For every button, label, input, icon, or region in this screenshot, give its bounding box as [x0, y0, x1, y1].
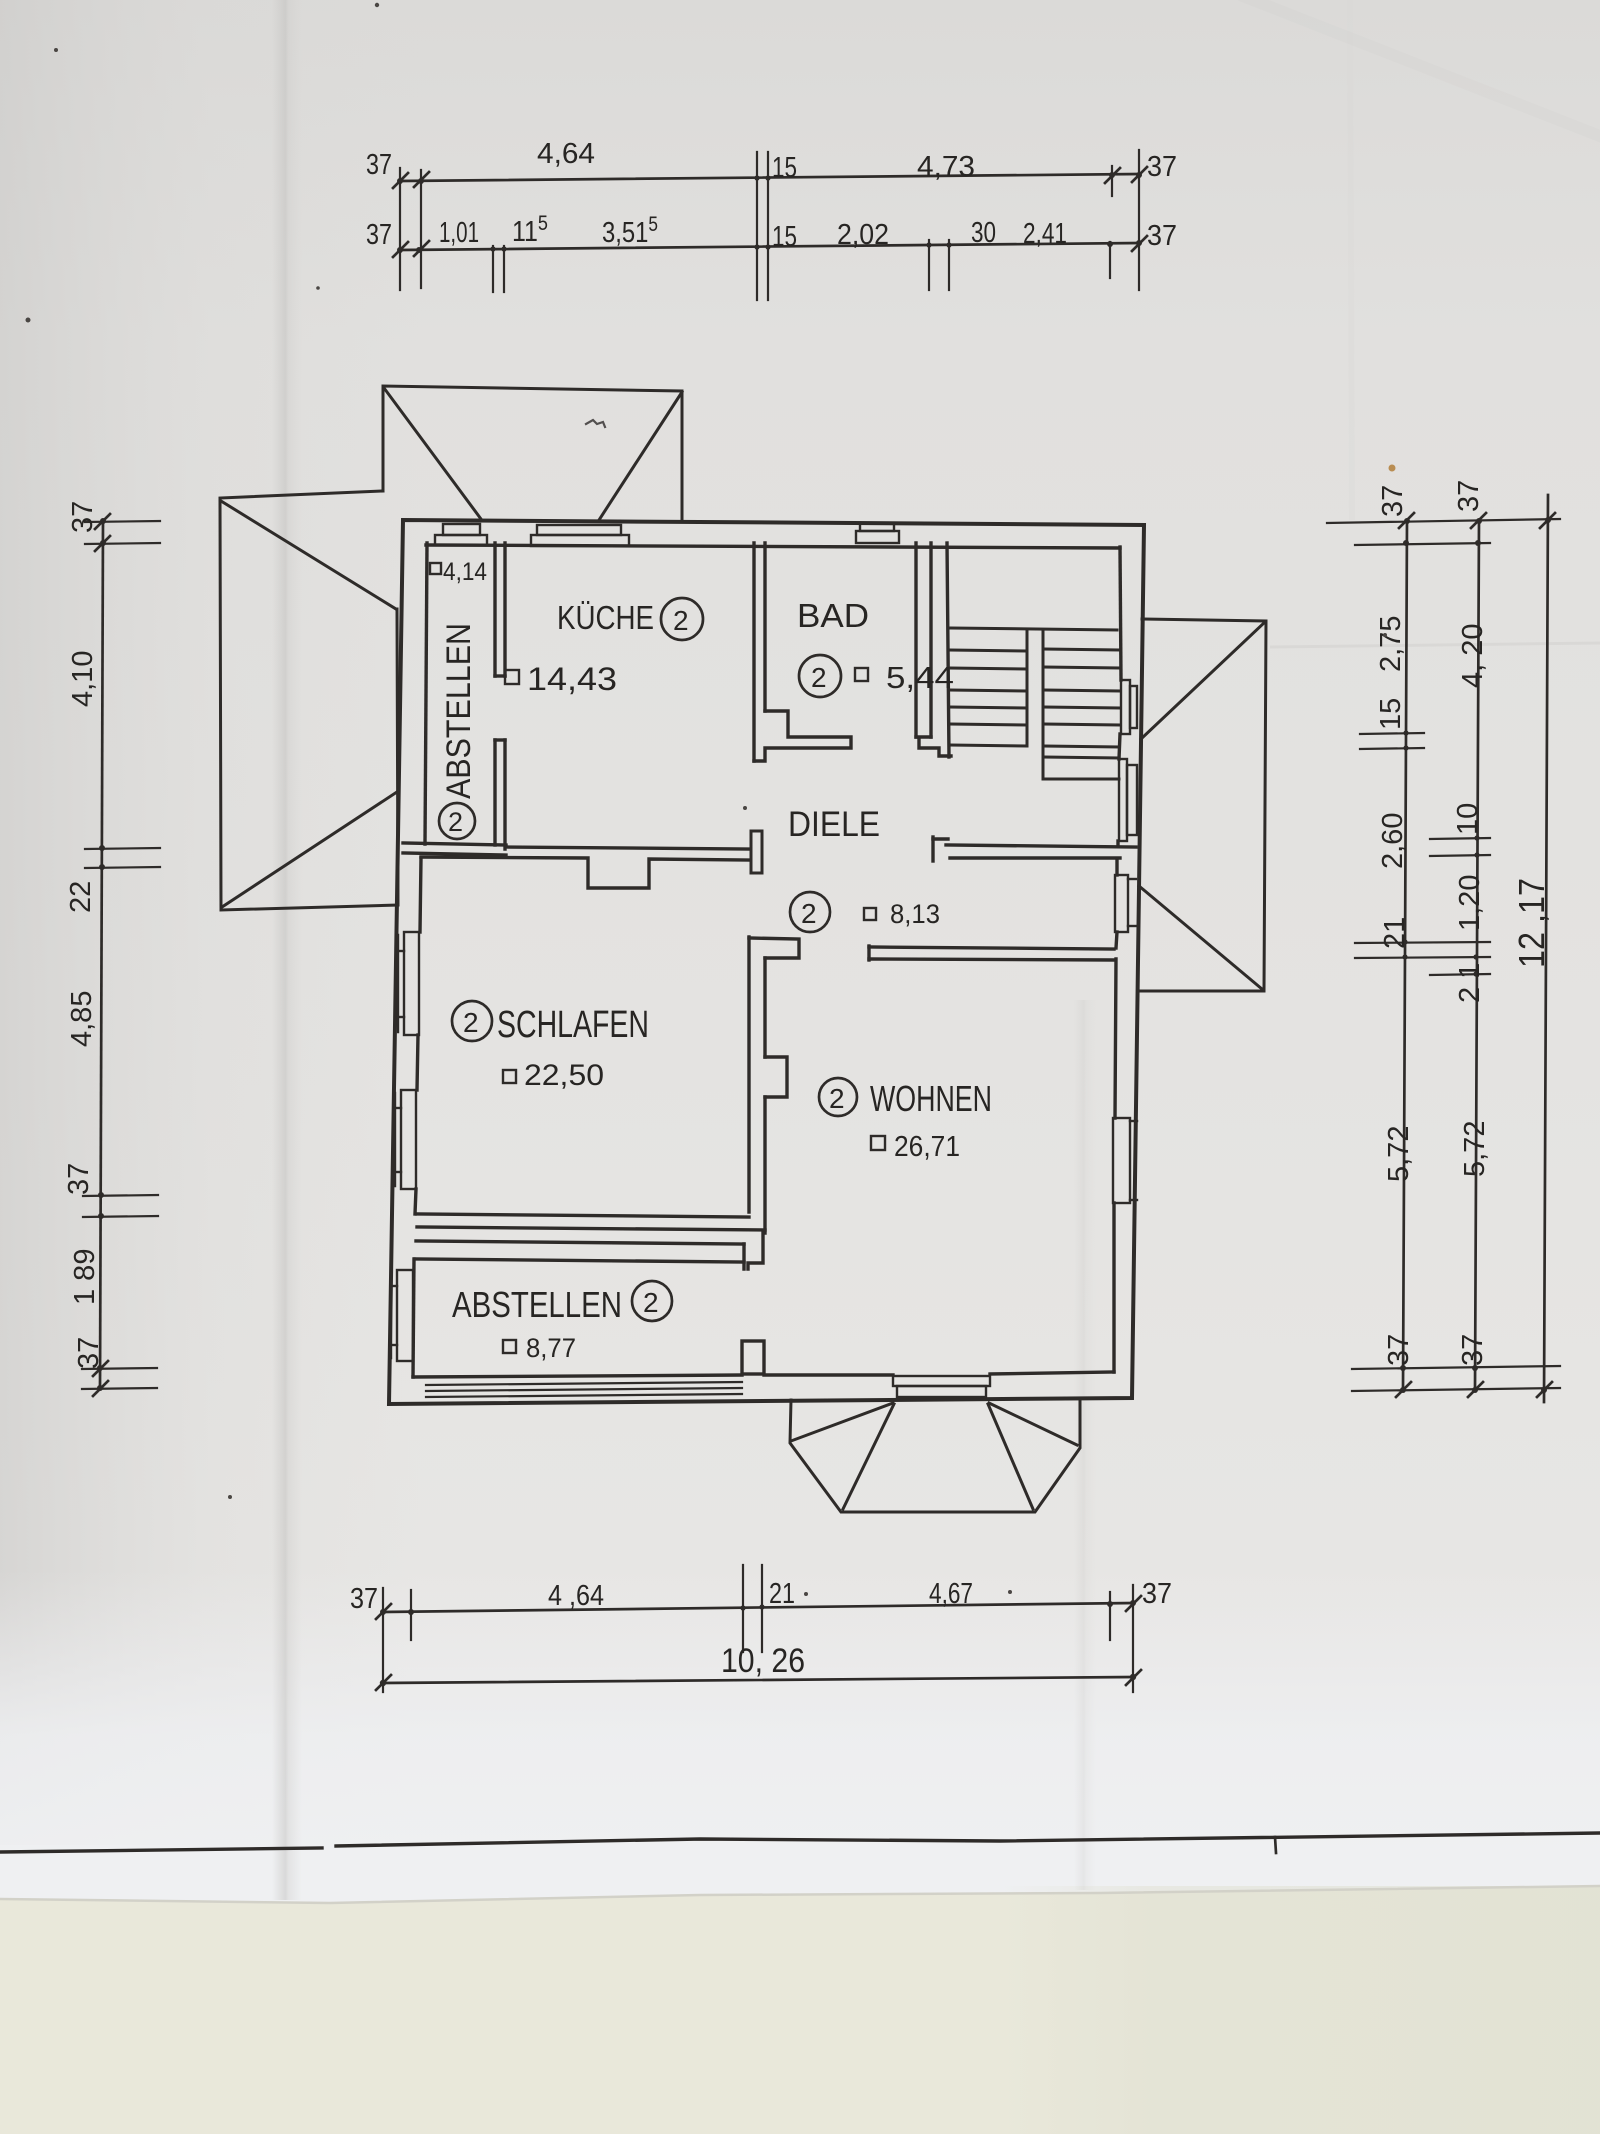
svg-text:15: 15: [772, 221, 797, 253]
svg-text:37: 37: [73, 1337, 105, 1369]
svg-text:8,77: 8,77: [526, 1333, 576, 1363]
svg-text:2: 2: [801, 898, 817, 929]
svg-text:1 89: 1 89: [69, 1249, 101, 1305]
svg-text:SCHLAFEN: SCHLAFEN: [497, 1004, 649, 1046]
svg-text:ABSTELLEN: ABSTELLEN: [440, 623, 478, 799]
svg-text:BAD: BAD: [797, 597, 869, 634]
svg-text:KÜCHE: KÜCHE: [557, 599, 654, 636]
svg-text:2 1: 2 1: [1454, 963, 1486, 1003]
svg-text:14,43: 14,43: [527, 661, 617, 697]
svg-text:37: 37: [1147, 151, 1177, 183]
svg-text:DIELE: DIELE: [788, 805, 880, 844]
svg-text:37: 37: [1142, 1578, 1172, 1610]
svg-text:2: 2: [643, 1287, 659, 1318]
svg-text:15: 15: [1375, 698, 1407, 730]
svg-text:37: 37: [350, 1583, 378, 1615]
svg-text:10: 10: [1452, 803, 1484, 835]
svg-text:8,13: 8,13: [890, 899, 940, 929]
svg-text:4, 20: 4, 20: [1457, 624, 1489, 689]
svg-text:2: 2: [463, 1007, 479, 1038]
svg-text:10, 26: 10, 26: [721, 1642, 805, 1680]
svg-text:22: 22: [65, 881, 97, 913]
svg-text:4,73: 4,73: [917, 151, 975, 183]
svg-text:37: 37: [1453, 480, 1485, 512]
svg-text:2: 2: [673, 605, 689, 636]
svg-text:37: 37: [1147, 220, 1177, 252]
svg-text:2,60: 2,60: [1377, 813, 1409, 869]
svg-text:15: 15: [772, 152, 797, 184]
svg-text:26,71: 26,71: [894, 1131, 960, 1163]
svg-text:37: 37: [366, 149, 392, 181]
svg-text:2,02: 2,02: [837, 219, 889, 251]
svg-text:21: 21: [1379, 917, 1411, 949]
svg-text:ABSTELLEN: ABSTELLEN: [452, 1284, 622, 1325]
svg-text:WOHNEN: WOHNEN: [870, 1078, 992, 1119]
svg-text:5,72: 5,72: [1383, 1126, 1415, 1182]
svg-text:2: 2: [448, 807, 463, 837]
svg-text:21: 21: [769, 1578, 795, 1610]
svg-text:37: 37: [1383, 1334, 1415, 1366]
svg-text:37: 37: [63, 1163, 95, 1195]
svg-text:37: 37: [366, 219, 392, 251]
svg-text:1,20: 1,20: [1454, 875, 1486, 931]
svg-text:2,41: 2,41: [1023, 218, 1067, 250]
svg-text:4 ,64: 4 ,64: [548, 1580, 604, 1612]
svg-text:4,85: 4,85: [66, 991, 98, 1047]
svg-text:1,01: 1,01: [439, 217, 479, 249]
svg-text:2: 2: [811, 662, 827, 693]
svg-text:4,64: 4,64: [537, 138, 595, 170]
svg-text:4,67: 4,67: [929, 1578, 973, 1610]
svg-text:30: 30: [971, 217, 996, 249]
svg-text:37: 37: [1377, 485, 1409, 517]
svg-text:5,72: 5,72: [1459, 1121, 1491, 1177]
svg-text:22,50: 22,50: [524, 1059, 604, 1092]
svg-text:37: 37: [67, 501, 99, 533]
svg-text:12 ,17: 12 ,17: [1511, 878, 1552, 968]
svg-text:4,14: 4,14: [443, 558, 487, 586]
svg-text:4,10: 4,10: [67, 651, 99, 707]
svg-text:2: 2: [829, 1083, 845, 1114]
svg-text:5,44: 5,44: [886, 660, 954, 695]
svg-text:2,75: 2,75: [1375, 616, 1407, 672]
svg-text:37: 37: [1457, 1334, 1489, 1366]
